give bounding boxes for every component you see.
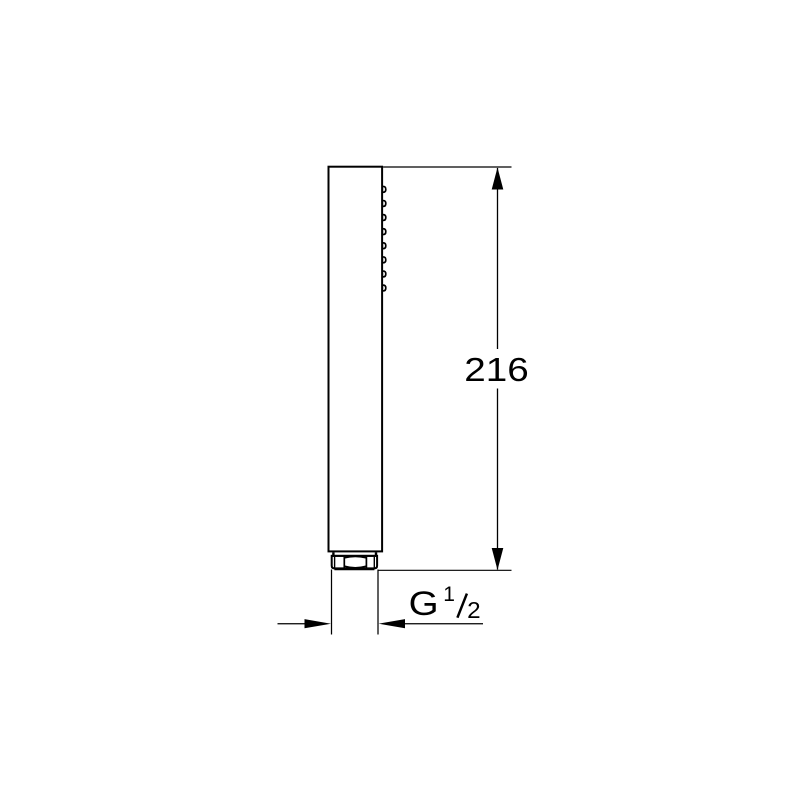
svg-text:G: G: [409, 585, 439, 623]
svg-text:216: 216: [464, 351, 529, 388]
svg-text:1: 1: [443, 583, 455, 606]
svg-text:2: 2: [467, 597, 481, 623]
